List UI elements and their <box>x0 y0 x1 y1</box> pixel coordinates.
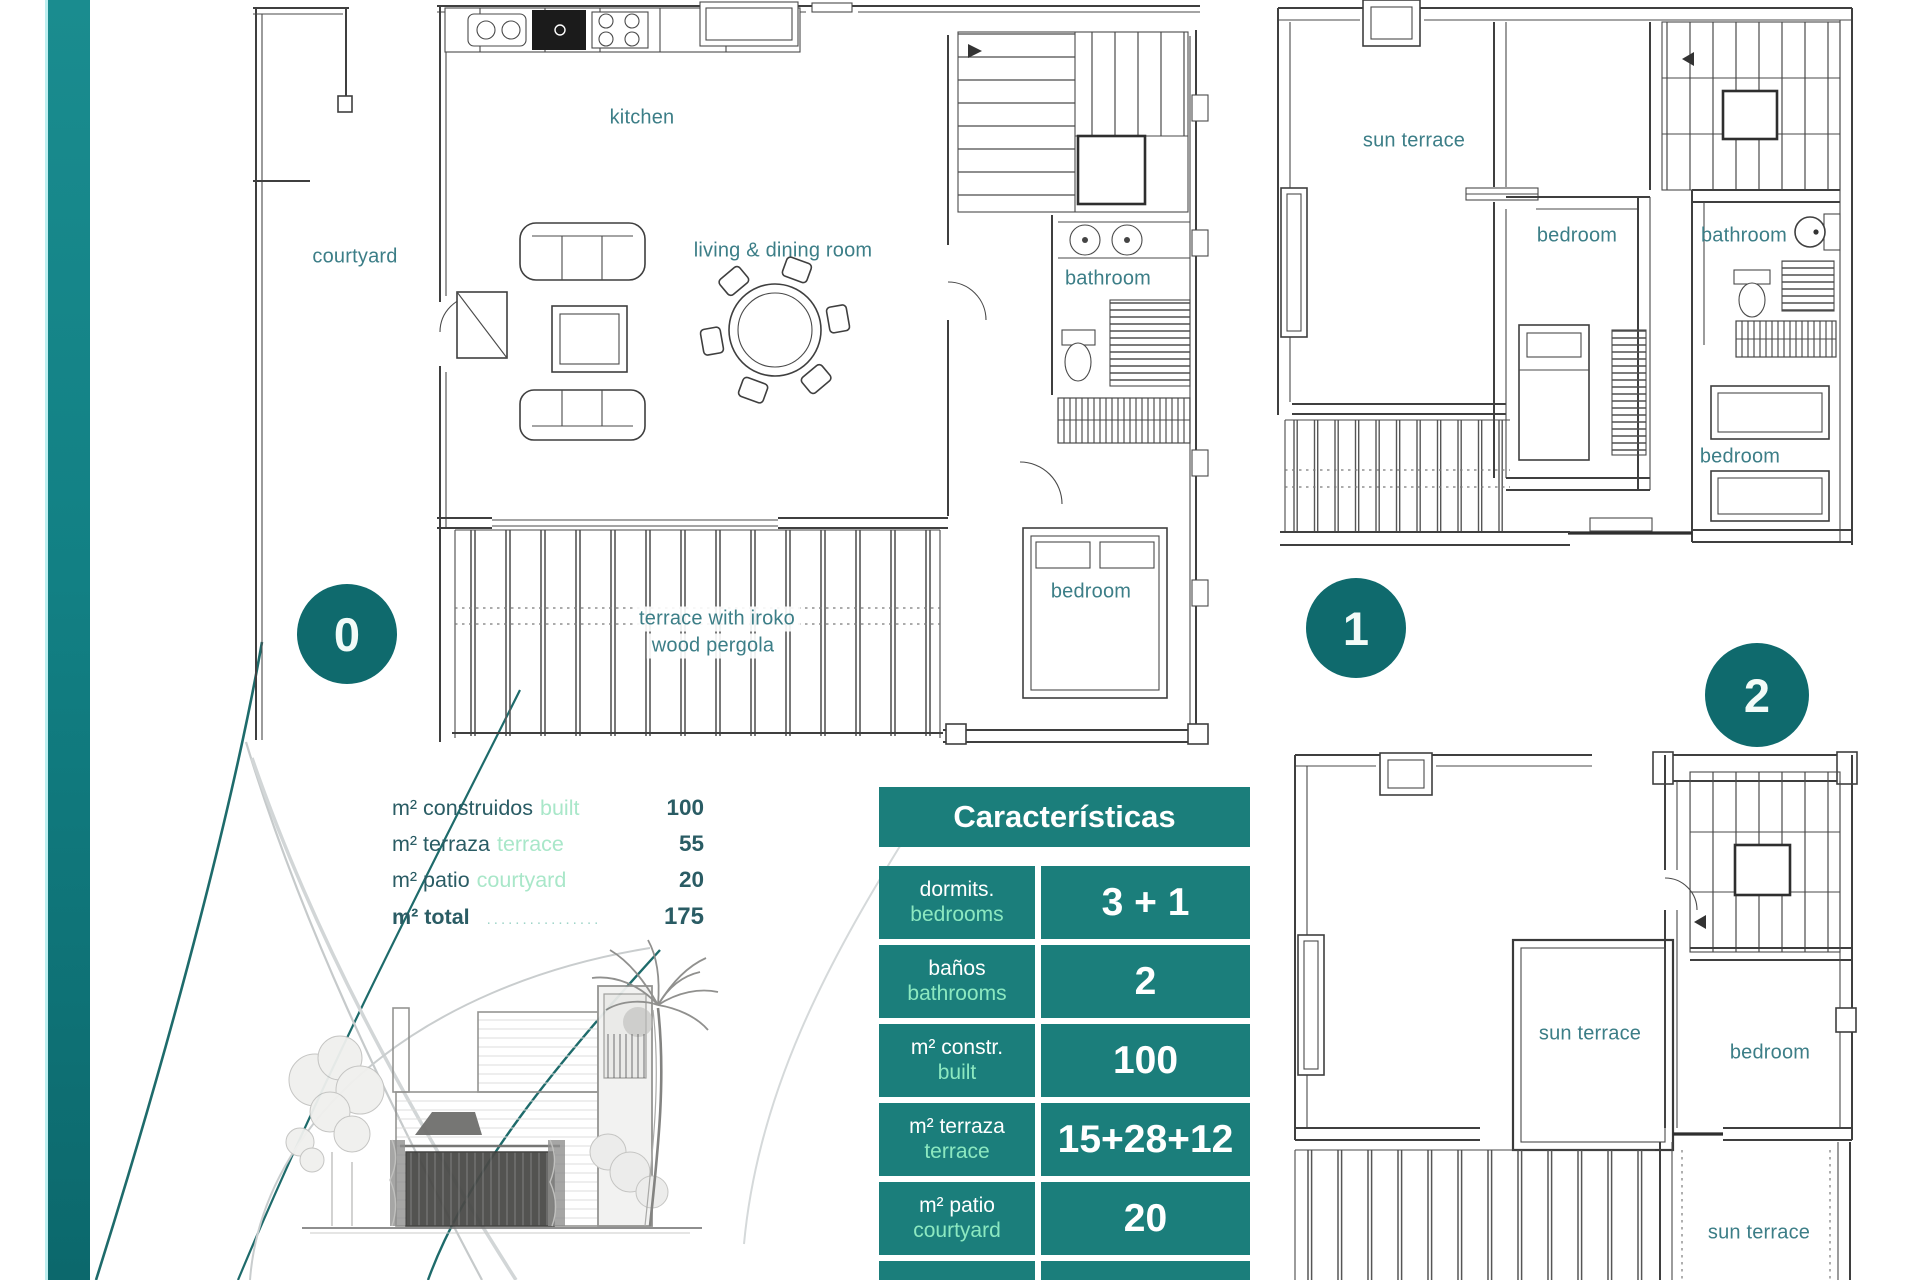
room-label-bathroom-f0: bathroom <box>1065 268 1151 291</box>
table-row-label: m² patio courtyard <box>879 1182 1035 1255</box>
room-label-bedroom-f1-mid: bedroom <box>1537 225 1617 248</box>
table-row-value: 2 <box>1041 945 1250 1018</box>
measurement-value: 100 <box>666 795 704 821</box>
elevation-sketch <box>286 940 718 1233</box>
table-row-value: 100 <box>1041 1024 1250 1097</box>
measurement-label-en: courtyard <box>477 868 567 893</box>
room-label-sun-terrace-f2-mid: sun terrace <box>1534 1022 1646 1047</box>
table-row-value: 20 <box>1041 1182 1250 1255</box>
floor-badge-0: 0 <box>297 584 397 684</box>
row-label-es: m² patio <box>919 1194 995 1219</box>
room-label-bathroom-f1: bathroom <box>1701 225 1787 248</box>
room-label-sun-terrace-f2-bottom: sun terrace <box>1708 1222 1810 1245</box>
floor-badge-1: 1 <box>1306 578 1406 678</box>
measurement-label-en: terrace <box>497 832 564 857</box>
measurement-label-es: m² construidos <box>392 796 533 821</box>
row-label-es: dormits. <box>920 878 995 903</box>
measurement-total-value: 175 <box>664 903 704 931</box>
row-label-en: courtyard <box>913 1219 1001 1244</box>
table-title: Características <box>879 787 1250 847</box>
room-label-kitchen: kitchen <box>610 107 675 130</box>
terrace-label-line2: wood pergola <box>647 634 780 659</box>
measurement-row: m² terraza terrace 55 <box>392 831 704 867</box>
floor-plan-sheet: .w {fill:none;stroke:#3f3f3f;stroke-widt… <box>0 0 1920 1280</box>
table-row-value: 15+28+12 <box>1041 1103 1250 1176</box>
measurement-label-es: m² terraza <box>392 832 490 857</box>
dotted-leader: ................ <box>487 911 602 928</box>
terrace-label-line1: terrace with iroko <box>634 607 800 632</box>
table-row-label: m² terraza terrace <box>879 1103 1035 1176</box>
row-label-en: bedrooms <box>910 903 1003 928</box>
floor2-plan <box>1295 752 1857 1280</box>
table-row-label: dormits. bedrooms <box>879 866 1035 939</box>
row-label-en: built <box>938 1061 977 1086</box>
room-label-bedroom-f0: bedroom <box>1046 580 1136 605</box>
row-label-es: m² constr. <box>911 1036 1003 1061</box>
table-row-value: 3 + 1 <box>1041 866 1250 939</box>
room-label-bedroom-f2: bedroom <box>1730 1042 1810 1065</box>
area-measurements: m² construidos built 100 m² terraza terr… <box>392 795 704 939</box>
characteristics-table: Características dormits. bedrooms 3 + 1 … <box>879 787 1250 1280</box>
measurement-value: 55 <box>679 831 704 857</box>
measurement-total-row: m² total ................ 175 <box>392 903 704 939</box>
row-label-es: m² terraza <box>909 1115 1005 1140</box>
measurement-label-en: built <box>540 796 579 821</box>
table-row-value: 455 <box>1041 1261 1250 1280</box>
room-label-courtyard: courtyard <box>312 246 397 269</box>
measurement-row: m² patio courtyard 20 <box>392 867 704 903</box>
table-row-label: m² constr. built <box>879 1024 1035 1097</box>
measurement-label-es: m² patio <box>392 868 470 893</box>
measurement-row: m² construidos built 100 <box>392 795 704 831</box>
row-label-en: bathrooms <box>907 982 1006 1007</box>
measurement-value: 20 <box>679 867 704 893</box>
table-row-label: m² parcela <box>879 1261 1035 1280</box>
row-label-en: terrace <box>924 1140 989 1165</box>
row-label-es: baños <box>928 957 985 982</box>
room-label-bedroom-f1-bottom: bedroom <box>1695 445 1785 470</box>
table-row-label: baños bathrooms <box>879 945 1035 1018</box>
room-label-sun-terrace-f1: sun terrace <box>1363 130 1465 153</box>
room-label-living-dining: living & dining room <box>694 240 873 263</box>
left-accent-bar <box>45 0 90 1280</box>
floor-badge-2: 2 <box>1705 643 1809 747</box>
measurement-total-label: m² total <box>392 905 470 930</box>
